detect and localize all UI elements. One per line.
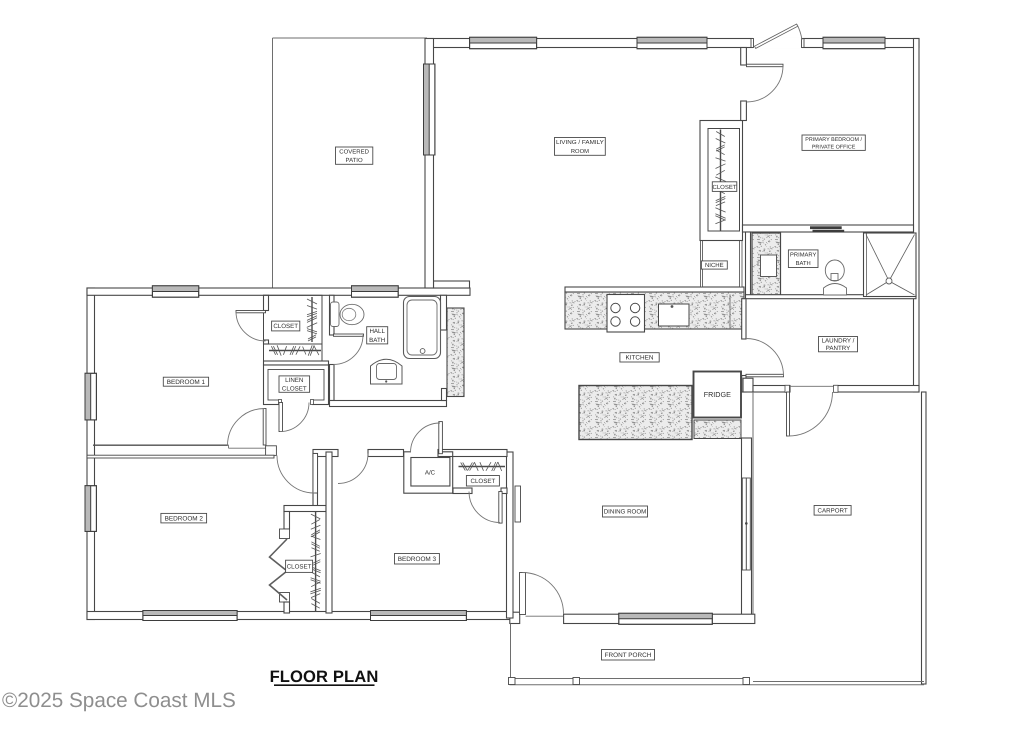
- svg-text:HALL: HALL: [369, 328, 385, 335]
- svg-text:CARPORT: CARPORT: [818, 508, 848, 515]
- svg-text:NICHE: NICHE: [705, 262, 724, 269]
- svg-text:CLOSET: CLOSET: [287, 564, 312, 571]
- svg-text:FRONT PORCH: FRONT PORCH: [605, 652, 652, 659]
- svg-text:DINING ROOM: DINING ROOM: [604, 509, 647, 516]
- svg-text:CLOSET: CLOSET: [282, 385, 307, 392]
- svg-text:446: 446: [756, 260, 760, 266]
- svg-text:FLOOR PLAN: FLOOR PLAN: [270, 667, 379, 686]
- svg-text:©2025 Space Coast MLS: ©2025 Space Coast MLS: [2, 689, 236, 712]
- svg-text:BEDROOM 2: BEDROOM 2: [165, 516, 204, 523]
- svg-text:LINEN: LINEN: [285, 377, 303, 384]
- svg-text:PANTRY: PANTRY: [826, 345, 851, 352]
- svg-text:LAUNDRY /: LAUNDRY /: [822, 338, 855, 345]
- svg-text:CLOSET: CLOSET: [712, 184, 736, 191]
- svg-text:ROOM: ROOM: [571, 148, 589, 155]
- svg-text:PRIMARY: PRIMARY: [790, 252, 816, 258]
- svg-text:LIVING / FAMILY: LIVING / FAMILY: [556, 139, 604, 146]
- svg-text:BATH: BATH: [796, 261, 811, 267]
- svg-text:PATIO: PATIO: [346, 157, 363, 164]
- svg-text:BEDROOM 3: BEDROOM 3: [398, 556, 437, 563]
- svg-text:KITCHEN: KITCHEN: [625, 355, 653, 362]
- svg-text:CLOSET: CLOSET: [471, 478, 496, 485]
- svg-text:A/C: A/C: [425, 470, 436, 477]
- svg-text:BATH: BATH: [369, 337, 385, 344]
- svg-text:CLOSET: CLOSET: [273, 323, 298, 330]
- svg-text:PRIMARY BEDROOM /: PRIMARY BEDROOM /: [805, 137, 862, 143]
- svg-text:BEDROOM 1: BEDROOM 1: [167, 379, 206, 386]
- svg-text:COVERED: COVERED: [339, 149, 369, 156]
- svg-text:FRIDGE: FRIDGE: [704, 390, 731, 399]
- svg-text:PRIVATE OFFICE: PRIVATE OFFICE: [812, 145, 856, 151]
